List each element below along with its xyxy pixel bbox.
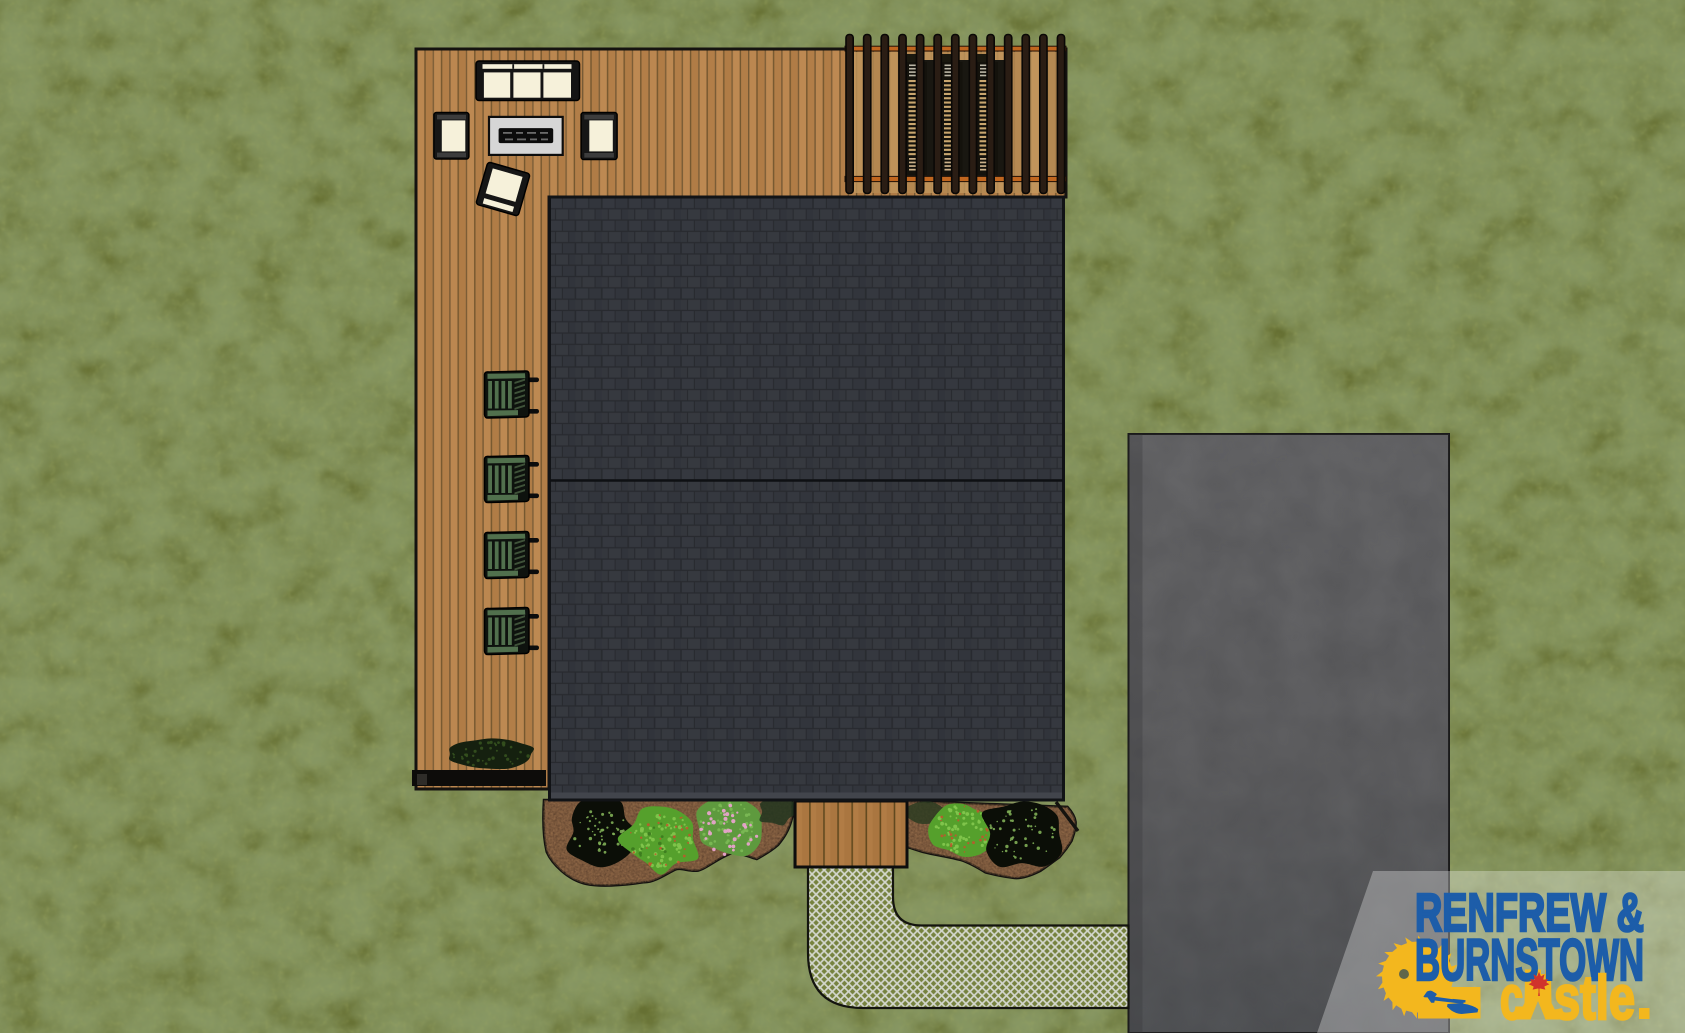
svg-text:c: c xyxy=(1500,964,1523,1033)
svg-text:stle: stle xyxy=(1554,964,1635,1033)
